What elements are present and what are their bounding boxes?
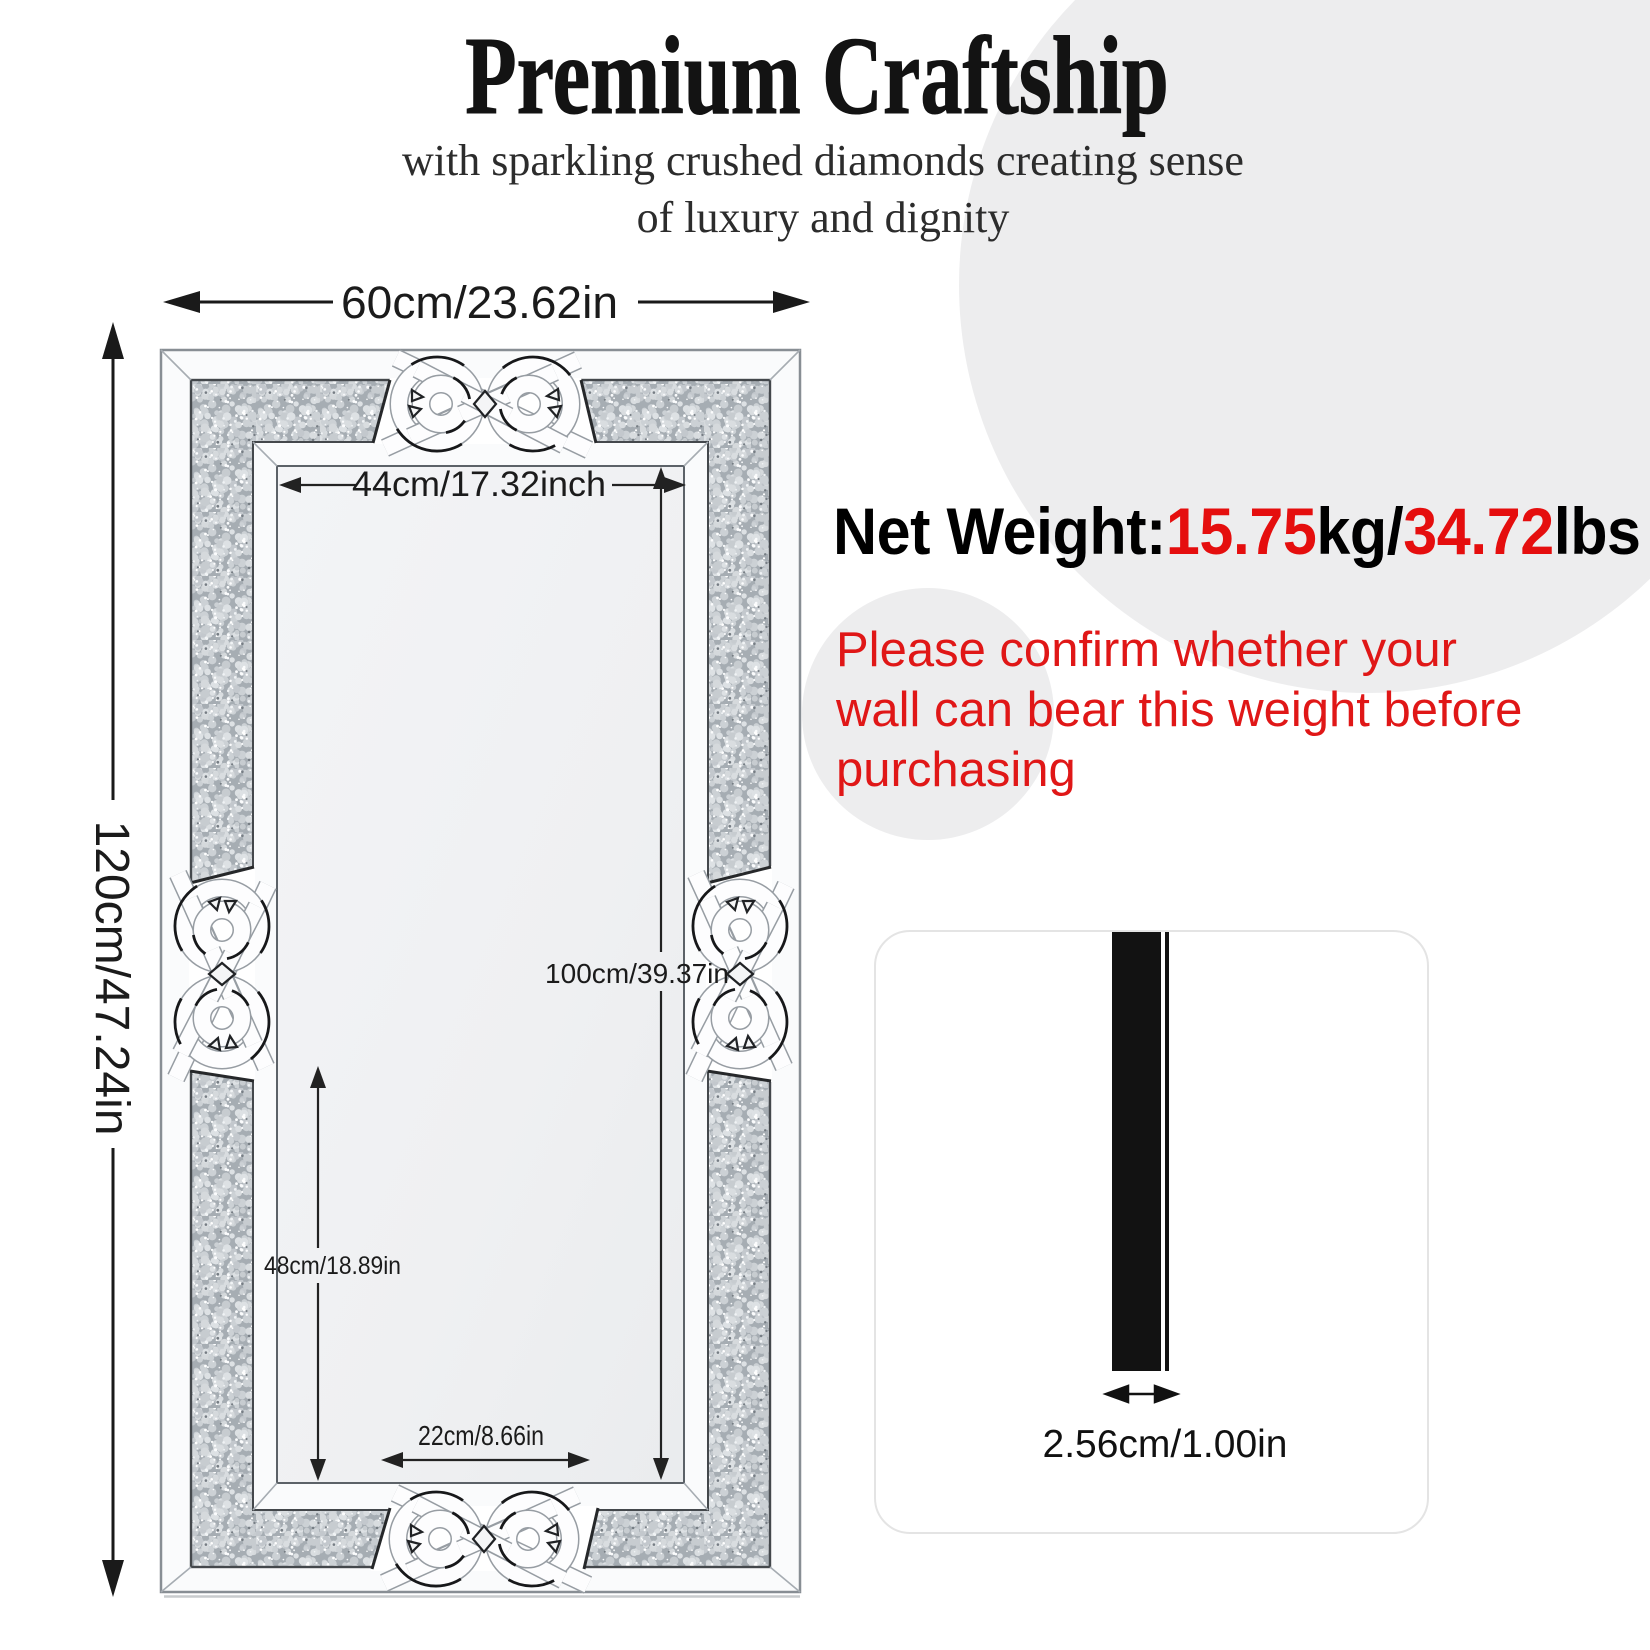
svg-text:44cm/17.32inch: 44cm/17.32inch <box>352 465 606 504</box>
svg-text:22cm/8.66in: 22cm/8.66in <box>418 1420 544 1451</box>
svg-text:120cm/47.24in: 120cm/47.24in <box>85 821 138 1136</box>
svg-text:60cm/23.62in: 60cm/23.62in <box>341 277 618 328</box>
svg-text:100cm/39.37in: 100cm/39.37in <box>545 958 729 989</box>
svg-text:48cm/18.89in: 48cm/18.89in <box>264 1252 401 1280</box>
